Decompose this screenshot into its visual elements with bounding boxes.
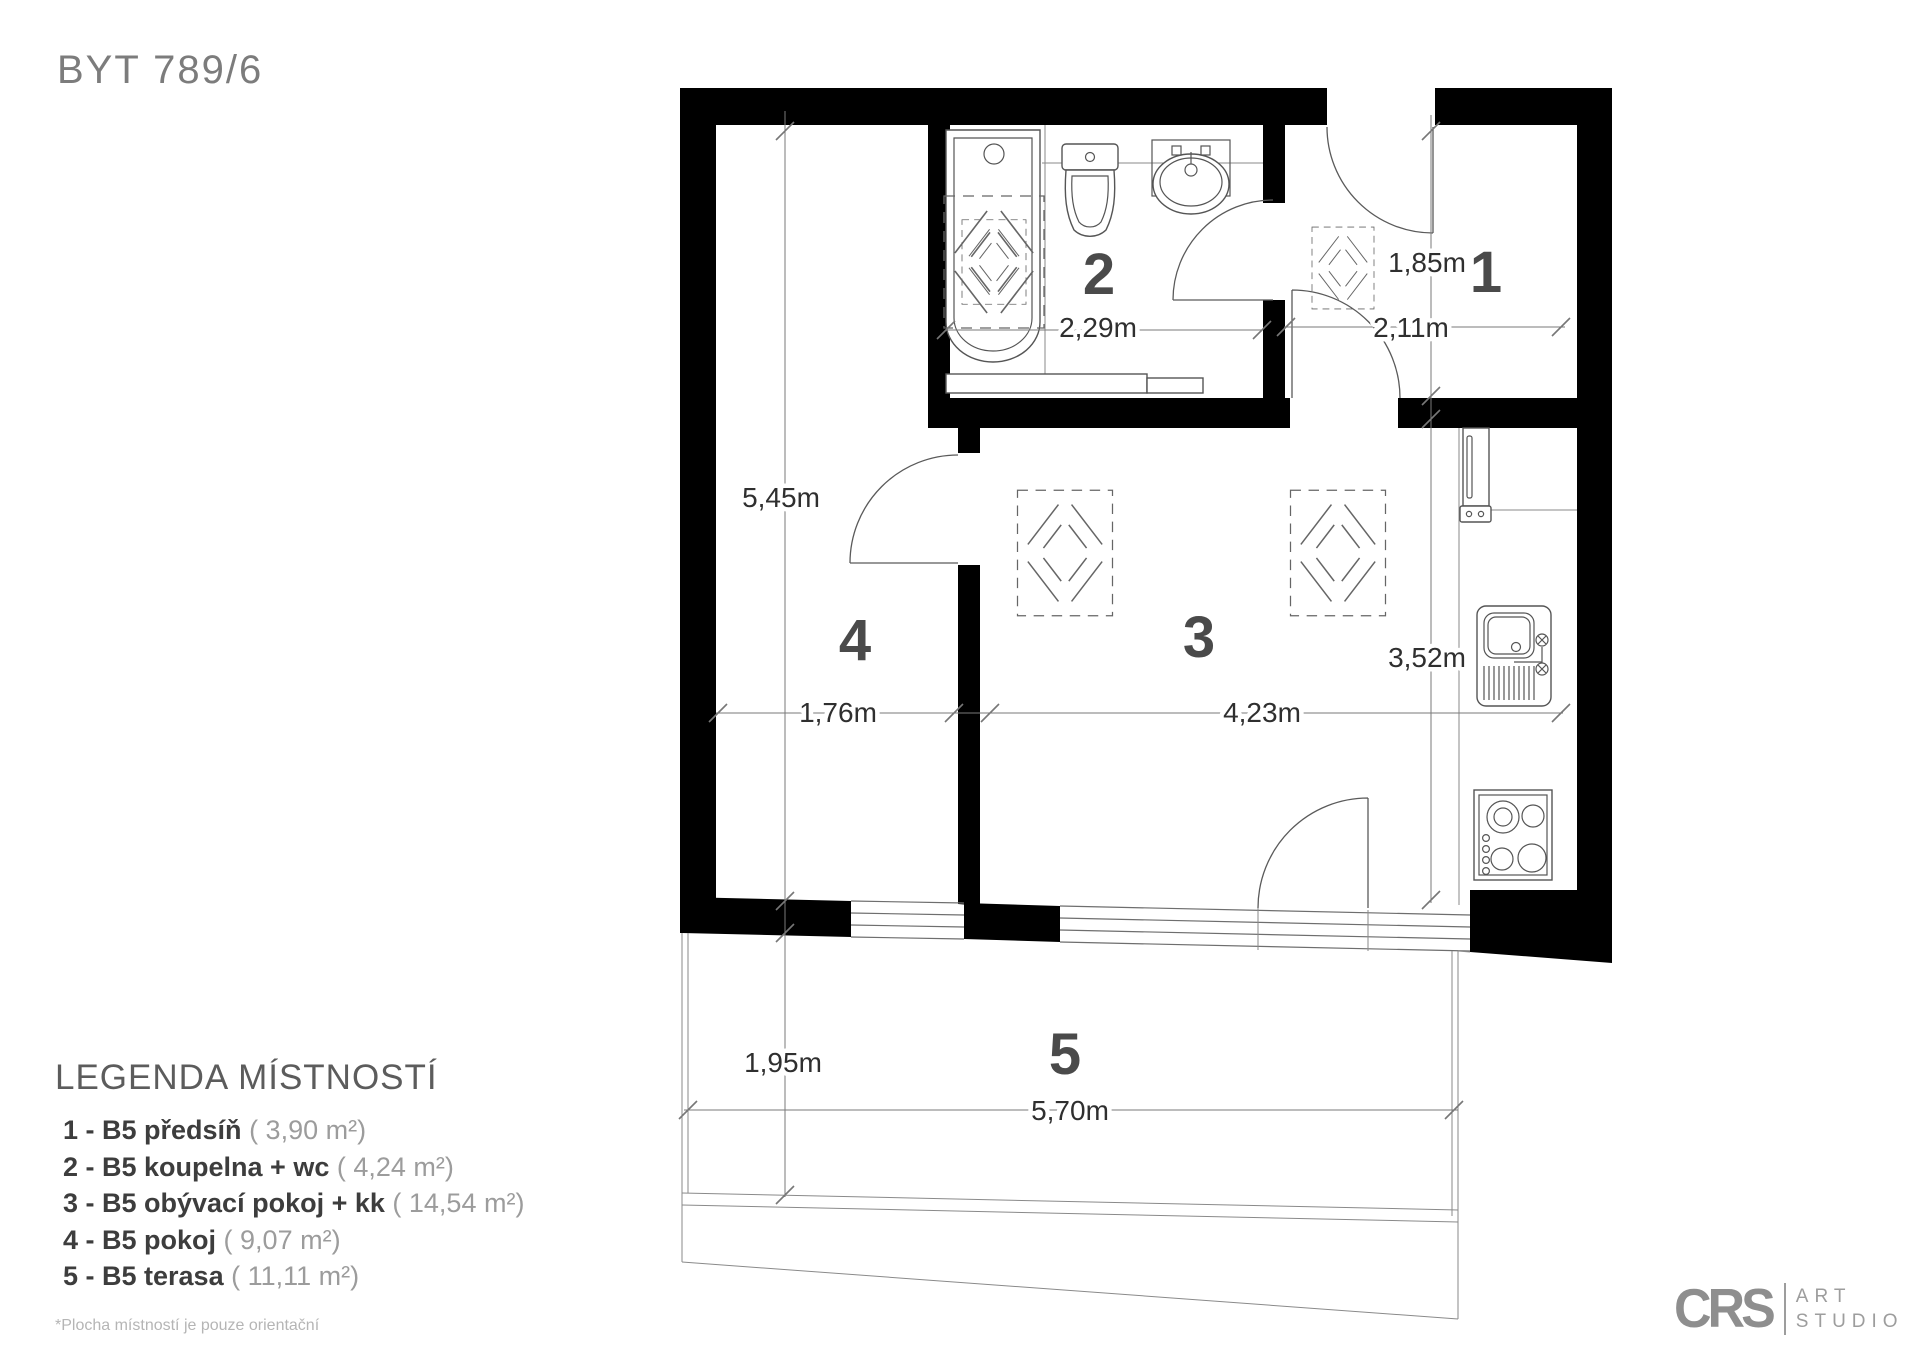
wall-room4-lower: [958, 565, 980, 906]
bedroom-door-opening: [958, 453, 980, 565]
floor-plan-page: 2,29m 1,85m 2,11m 5,45m 1,76m 4,23m 3,52…: [0, 0, 1920, 1357]
entrance-door-arc: [1327, 127, 1433, 233]
wall-bath-hall-upper: [1263, 125, 1285, 203]
studio-logo: CRS ART STUDIO: [1674, 1279, 1904, 1339]
logo-word-art: ART: [1796, 1284, 1904, 1309]
hall-door-arc: [1292, 290, 1400, 398]
room-number-bathroom: 2: [1083, 242, 1115, 307]
walls: [680, 88, 1612, 963]
logo-initials: CRS: [1674, 1278, 1772, 1341]
hall-door-opening: [1290, 398, 1398, 428]
page-title: BYT 789/6: [57, 48, 263, 93]
fridge: [1460, 428, 1491, 522]
terrace-outline: [682, 933, 1470, 1319]
legend-item-4: 4 - B5 pokoj ( 9,07 m²): [63, 1222, 575, 1259]
wash-basin: [1152, 140, 1230, 214]
kitchen-corner: [1459, 428, 1577, 905]
legend-item-3: 3 - B5 obývací pokoj + kk ( 14,54 m²): [63, 1185, 575, 1222]
legend-item-1: 1 - B5 předsíň ( 3,90 m²): [63, 1112, 575, 1149]
wall-bottom-corner: [1470, 890, 1612, 963]
windows: [851, 901, 1470, 951]
dim-living-height: 3,52m: [1388, 642, 1466, 673]
room-number-terrace: 5: [1049, 1022, 1081, 1087]
wall-bath-hall-lower: [1263, 300, 1285, 398]
bedroom-door-arc: [850, 455, 958, 563]
wall-bottom-seg2: [964, 903, 1060, 942]
bath-door-arc: [1173, 200, 1273, 300]
wall-mid-left: [928, 398, 1290, 428]
dim-living-width: 4,23m: [1223, 697, 1301, 728]
logo-word-studio: STUDIO: [1796, 1309, 1904, 1334]
dim-bedroom-height: 5,45m: [742, 482, 820, 513]
room-number-bedroom: 4: [839, 608, 871, 673]
bath-cabinet-step: [1147, 378, 1203, 393]
logo-divider: [1784, 1283, 1786, 1335]
stove: [1474, 790, 1552, 880]
dim-bedroom-width: 1,76m: [799, 697, 877, 728]
wall-room4-upper: [958, 428, 980, 453]
room-number-hall: 1: [1470, 240, 1502, 305]
toilet: [1062, 144, 1118, 236]
wall-top-right: [1435, 88, 1612, 890]
legend-heading: LEGENDA MÍSTNOSTÍ: [55, 1058, 575, 1098]
bath-door-opening: [1263, 203, 1285, 300]
room-number-living: 3: [1183, 605, 1215, 670]
dim-terrace-depth: 1,95m: [744, 1047, 822, 1078]
terrace-door-jambs: [1258, 908, 1368, 951]
dim-hall-width: 2,11m: [1373, 312, 1449, 343]
legend-item-2: 2 - B5 koupelna + wc ( 4,24 m²): [63, 1149, 575, 1186]
terrace-door-arc: [1258, 798, 1368, 908]
window-bedroom: [851, 901, 964, 939]
entrance-opening: [1327, 88, 1435, 125]
kitchen-sink: [1477, 606, 1551, 706]
legend-list: 1 - B5 předsíň ( 3,90 m²) 2 - B5 koupeln…: [55, 1112, 575, 1295]
dim-terrace-width: 5,70m: [1031, 1095, 1109, 1126]
legend-item-5: 5 - B5 terasa ( 11,11 m²): [63, 1258, 575, 1295]
dim-bathroom-width: 2,29m: [1059, 312, 1137, 343]
legend-footnote: *Plocha místností je pouze orientační: [55, 1317, 575, 1335]
glazed-wall-living: [1060, 906, 1470, 951]
wall-bottom-seg1: [682, 897, 851, 937]
dim-hall-depth: 1,85m: [1388, 247, 1466, 278]
bath-cabinet: [946, 374, 1147, 393]
room-legend: LEGENDA MÍSTNOSTÍ 1 - B5 předsíň ( 3,90 …: [55, 1058, 575, 1335]
